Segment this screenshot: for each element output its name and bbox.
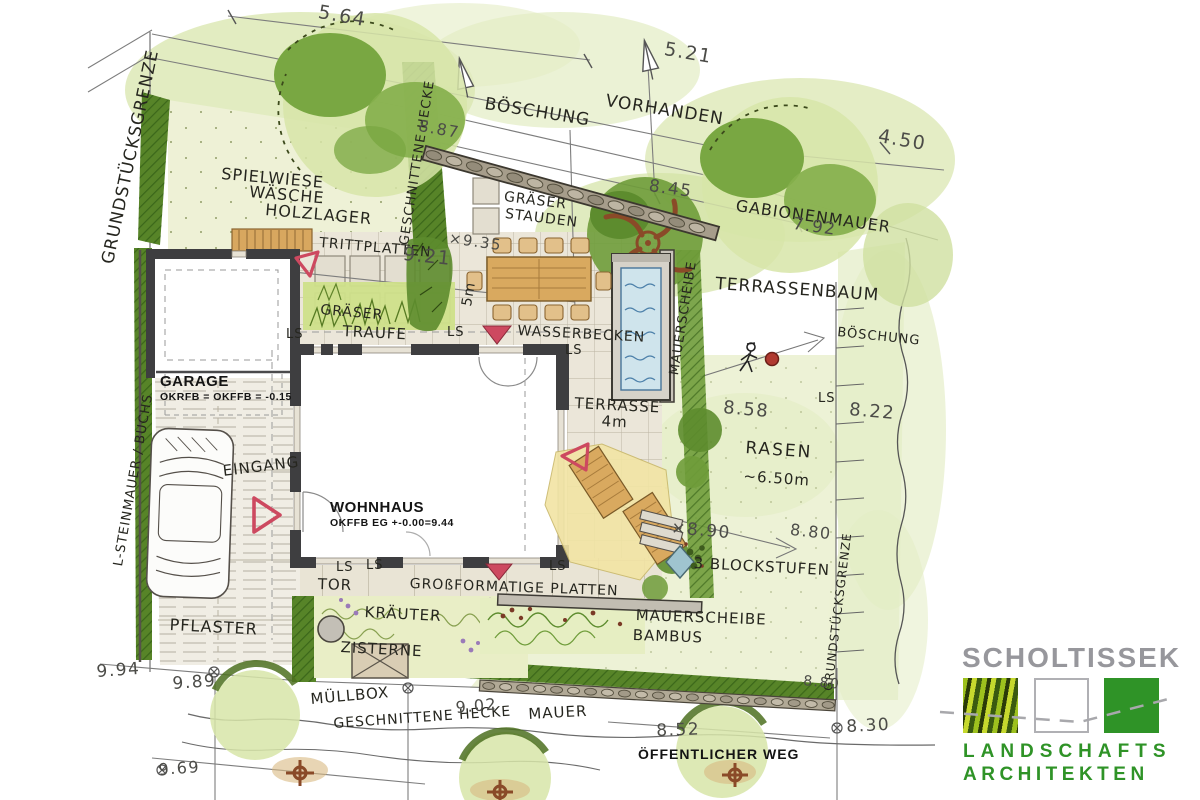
- dim-9-94: 9.94: [96, 661, 141, 681]
- dim-8-80b: 8.80: [803, 674, 841, 692]
- label-rasen-width: ~6.50m: [743, 469, 810, 489]
- logo-name: SCHOLTISSEK: [962, 642, 1181, 674]
- label-ls-5: LS: [336, 561, 354, 574]
- label-garage-title: GARAGE: [160, 374, 229, 389]
- car: [146, 428, 234, 599]
- label-bambus: BAMBUS: [632, 628, 703, 645]
- logo-grass-square: [963, 678, 1018, 733]
- label-weg: ÖFFENTLICHER WEG: [638, 747, 799, 761]
- label-rasen: RASEN: [745, 440, 813, 462]
- label-garage-level: OKRFB = OKFFB = -0.15: [160, 392, 292, 403]
- label-ls-2: LS: [447, 326, 465, 339]
- label-traufe: TRAUFE: [342, 324, 407, 342]
- dim-9-89: 9.89: [172, 673, 217, 693]
- label-mauer: MAUER: [528, 704, 588, 722]
- label-terrasse-width: 4m: [601, 414, 628, 430]
- label-wohnhaus-level: OKFFB EG +-0.00=9.44: [330, 518, 454, 529]
- dim-8-90: ×8.90: [671, 520, 732, 542]
- label-ls-6: LS: [366, 559, 384, 572]
- label-pflaster: PFLASTER: [169, 617, 258, 638]
- dim-8-80: 8.80: [789, 522, 832, 542]
- label-kraeuter: KRÄUTER: [364, 605, 442, 624]
- logo-line2: ARCHITEKTEN: [963, 764, 1149, 786]
- label-ls-1: LS: [286, 328, 304, 341]
- dim-8-52: 8.52: [656, 721, 700, 740]
- slope-right: [836, 238, 910, 700]
- label-tor: TOR: [317, 577, 352, 593]
- ball: [766, 353, 779, 366]
- site-plan: GRUNDSTÜCKSGRENZE GESCHNITTENE HECKE SPI…: [0, 0, 1200, 800]
- label-ls-3: LS: [565, 344, 583, 357]
- logo-white-square: [1034, 678, 1089, 733]
- logo-green-square: [1104, 678, 1159, 733]
- dim-8-58: 8.58: [722, 399, 769, 421]
- dim-8-30: 8.30: [846, 717, 891, 736]
- label-wohnhaus-title: WOHNHAUS: [330, 500, 424, 515]
- label-mauerscheibe-2: MAUERSCHEIBE: [635, 608, 766, 628]
- dim-9-69: 9.69: [158, 759, 201, 778]
- logo-line1: LANDSCHAFTS: [963, 741, 1172, 763]
- label-zisterne: ZISTERNE: [340, 640, 423, 659]
- label-ls-7: LS: [549, 560, 567, 573]
- label-ls-4: LS: [818, 392, 836, 405]
- label-5m: 5m: [460, 281, 478, 308]
- dim-9-21: 9.21: [402, 245, 452, 269]
- wasserbecken-basin: [612, 254, 670, 400]
- dim-9-02: 9.02: [455, 696, 498, 716]
- dim-8-22: 8.22: [848, 401, 895, 423]
- holzlager-bench: [232, 229, 312, 251]
